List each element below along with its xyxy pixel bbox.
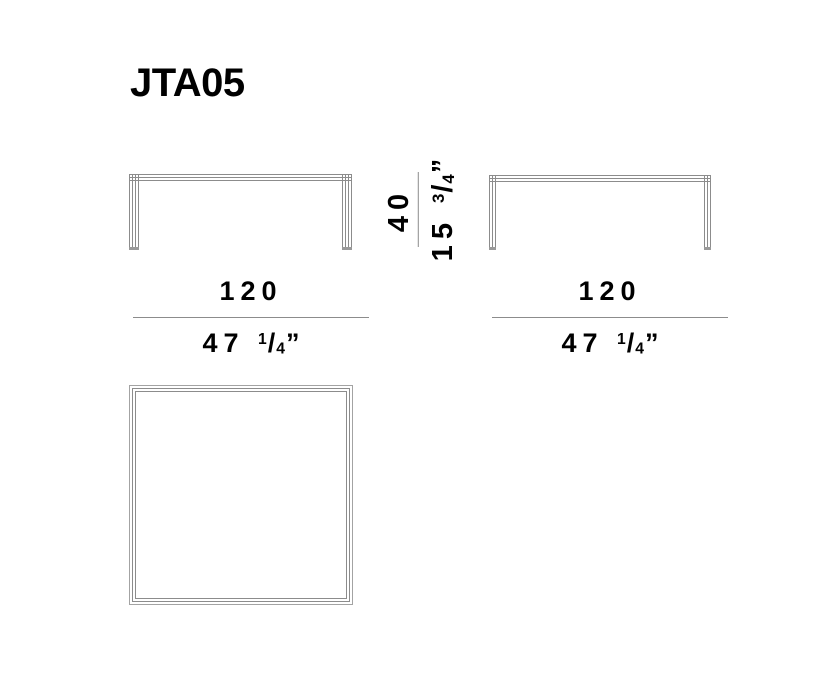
front-elevation-view (129, 174, 352, 250)
height-cm-value: 40 (384, 155, 414, 265)
table-foot-left (129, 247, 139, 250)
table-foot-left (489, 247, 496, 250)
dimension-divider-line (418, 173, 419, 248)
front-width-dimension: 120 47 1/4” (133, 277, 369, 365)
tabletop-innermost-edge (135, 391, 347, 599)
height-dimension: 40 15 3/4” (384, 155, 464, 265)
side-width-inch-value: 47 1/4” (492, 325, 728, 365)
table-leg-right (704, 175, 711, 247)
top-plan-view (129, 385, 353, 605)
tabletop-edge (129, 174, 352, 181)
side-width-cm-value: 120 (492, 277, 728, 305)
tabletop-inner-edge (132, 388, 350, 602)
dimension-drawing-canvas: JTA05 40 15 3/4” 120 47 1/4” 120 47 1/4” (0, 0, 840, 679)
tabletop-edge (489, 175, 711, 182)
table-foot-right (704, 247, 711, 250)
side-width-dimension: 120 47 1/4” (492, 277, 728, 365)
height-inch-value: 15 3/4” (424, 155, 464, 265)
table-leg-right (342, 174, 352, 247)
dimension-divider-line (133, 317, 369, 318)
table-foot-right (342, 247, 352, 250)
front-width-cm-value: 120 (133, 277, 369, 305)
side-elevation-view (489, 175, 711, 250)
dimension-divider-line (492, 317, 728, 318)
front-width-inch-value: 47 1/4” (133, 325, 369, 365)
table-leg-left (129, 174, 139, 247)
product-code: JTA05 (130, 63, 245, 103)
table-leg-left (489, 175, 496, 247)
